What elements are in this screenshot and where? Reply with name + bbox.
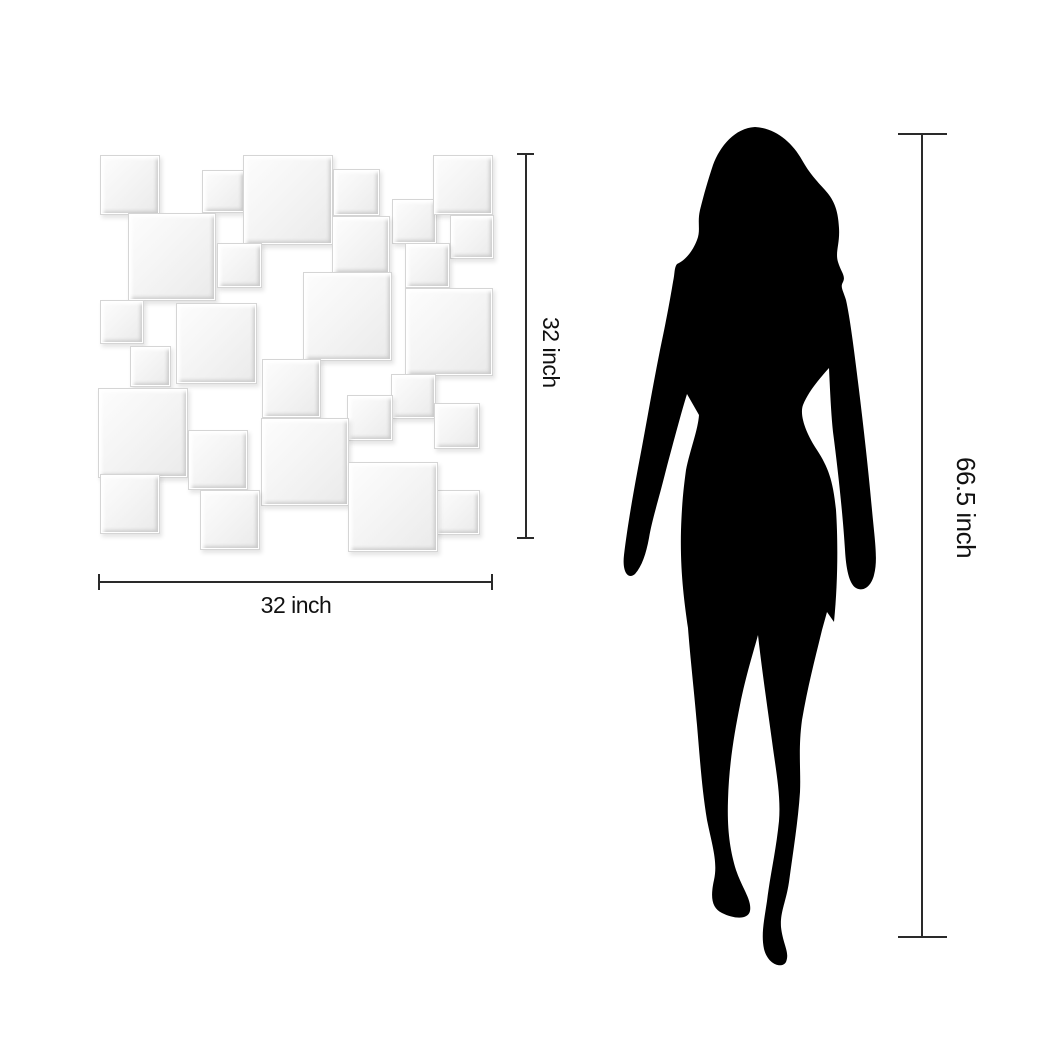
woman-silhouette: [600, 110, 900, 980]
mirror-tile: [128, 213, 216, 301]
mirror-width-cap-right: [491, 574, 493, 590]
mirror-tile: [433, 155, 493, 215]
mirror-tile: [98, 388, 188, 478]
figure-height-label: 66.5 inch: [950, 457, 981, 558]
woman-silhouette-path: [624, 127, 876, 965]
mirror-tile: [176, 303, 257, 384]
mirror-height-label: 32 inch: [537, 317, 564, 388]
mirror-tile: [434, 403, 480, 449]
mirror-tile: [405, 243, 450, 288]
mirror-width-cap-left: [98, 574, 100, 590]
mirror-tile: [100, 155, 160, 215]
mirror-tile: [392, 199, 437, 244]
diagram-canvas: 32 inch 32 inch 66.5 inch: [0, 0, 1050, 1050]
mirror-tile: [217, 243, 262, 288]
mirror-tile: [200, 490, 260, 550]
product-dimension-diagram: { "page": { "description": "Size illustr…: [0, 0, 1050, 1050]
mirror-tile: [333, 169, 380, 216]
mirror-width-line: [99, 581, 492, 583]
mirror-tile: [303, 272, 392, 361]
figure-height-cap-top: [898, 133, 947, 135]
mirror-tile: [261, 418, 349, 506]
mirror-tile: [348, 462, 438, 552]
figure-height-cap-bottom: [898, 936, 947, 938]
mirror-width-label: 32 inch: [246, 592, 346, 619]
mirror-tile: [100, 300, 144, 344]
mirror-tile: [130, 346, 171, 387]
mirror-tile: [243, 155, 333, 245]
figure-height-line: [921, 134, 923, 938]
mirror-tile: [332, 216, 390, 274]
mirror-height-line: [525, 154, 527, 538]
mirror-tile: [405, 288, 493, 376]
mirror-tile: [391, 374, 436, 419]
mirror-tile: [100, 474, 160, 534]
mirror-height-cap-bottom: [517, 537, 534, 539]
mirror-tile: [188, 430, 248, 490]
mirror-height-cap-top: [517, 153, 534, 155]
mirror-tile: [202, 170, 245, 213]
mirror-tile: [435, 490, 480, 535]
mirror-tile: [450, 215, 494, 259]
mirror-tile: [262, 359, 321, 418]
mirror-tile: [347, 395, 393, 441]
